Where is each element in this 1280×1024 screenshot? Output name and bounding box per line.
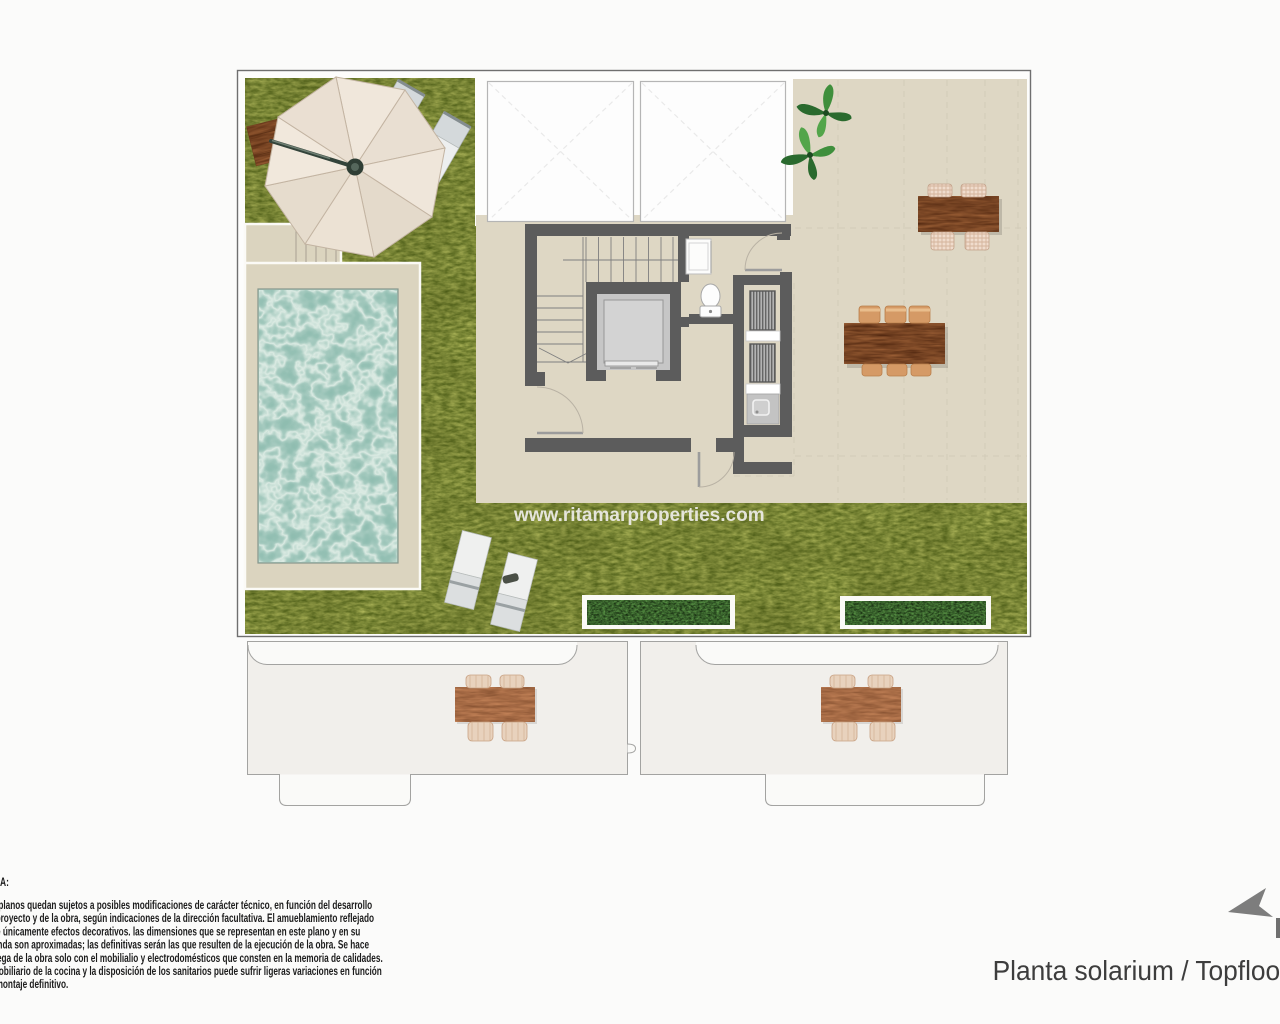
svg-text:El mobiliario de la cocina y l: El mobiliario de la cocina y la disposic…: [0, 964, 382, 978]
svg-text:Los planos quedan sujetos a po: Los planos quedan sujetos a posibles mod…: [0, 898, 373, 912]
svg-text:www.ritamarproperties.com: www.ritamarproperties.com: [513, 505, 765, 526]
svg-text:A:: A:: [0, 875, 9, 889]
svg-text:del proyecto y de la obra, seg: del proyecto y de la obra, según indicac…: [0, 912, 374, 926]
svg-text:entrega de la obra solo con el: entrega de la obra solo con el mobiliali…: [0, 951, 383, 965]
svg-text:Planta solarium / Topfloor: Planta solarium / Topfloor: [993, 954, 1280, 986]
svg-text:del montaje definitivo.: del montaje definitivo.: [0, 978, 68, 992]
svg-text:tiene únicamente efectos decor: tiene únicamente efectos decorativos. la…: [0, 925, 360, 939]
svg-text:leyenda son aproximadas; las d: leyenda son aproximadas; las definitivas…: [0, 938, 369, 952]
